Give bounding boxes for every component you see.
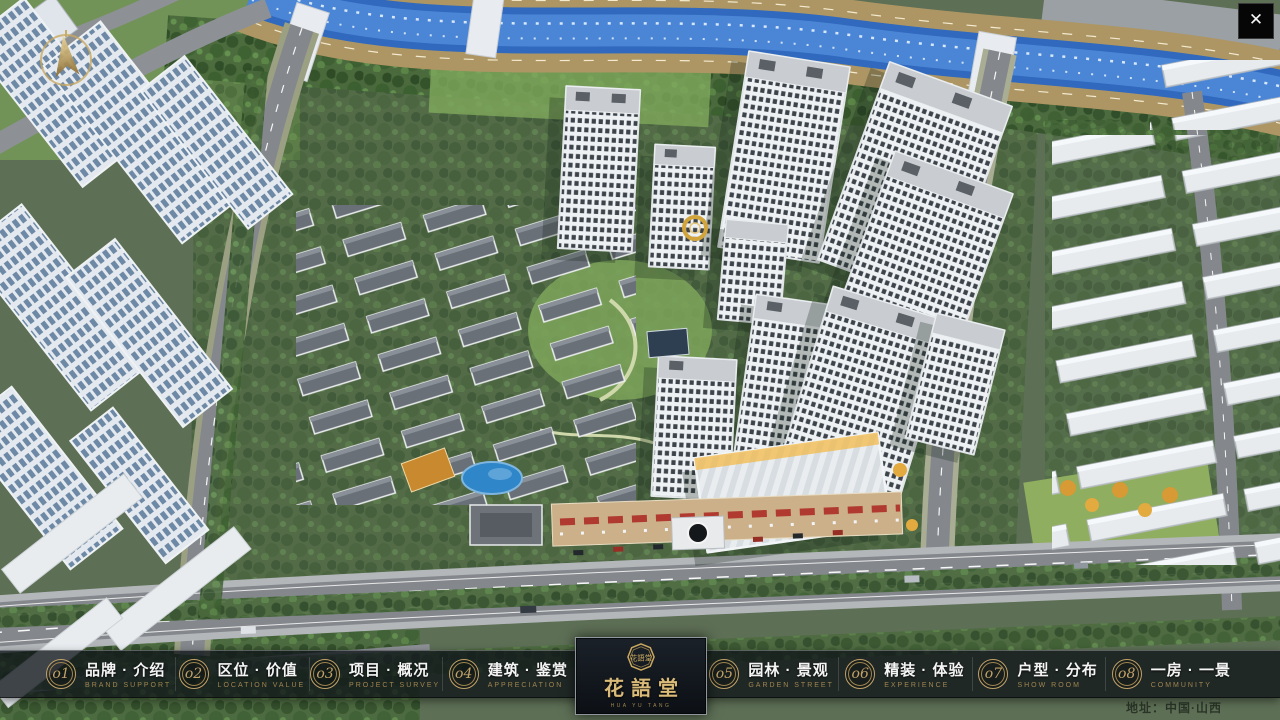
nav-item-interior[interactable]: o6 精装 · 体验EXPERIENCE [838,651,971,697]
nav-item-location[interactable]: o2 区位 · 价值LOCATION VALUE [175,651,308,697]
nav-item-project[interactable]: o3 项目 · 概况PROJECT SURVEY [309,651,442,697]
nav-item-garden[interactable]: o5 园林 · 景观GARDEN STREET [705,651,838,697]
svg-text:花語堂: 花語堂 [630,652,652,662]
brand-seal-icon: 花語堂 [627,643,655,671]
entrance-gate [671,516,724,550]
nav-item-brand[interactable]: o1 品牌 · 介绍BRAND SUPPORT [42,651,175,697]
nav-item-number-badge: o1 [46,659,76,689]
nav-item-label-en: LOCATION VALUE [218,682,306,689]
nav-item-number-badge: o2 [179,659,209,689]
nav-item-label-cn: 建筑 · 鉴赏 [488,659,568,680]
nav-item-label-en: COMMUNITY [1151,682,1212,689]
nav-item-label-en: SHOW ROOM [1017,682,1081,689]
nav-item-number-badge: o5 [709,659,739,689]
nav-item-number-badge: o6 [845,659,875,689]
project-address: 地址：中国·山西 [1126,699,1222,716]
nav-item-label-cn: 项目 · 概况 [349,659,429,680]
nav-item-number-badge: o3 [310,659,340,689]
brand-name: 花語堂 [597,672,685,701]
presentation-stage: ✕ o1 品牌 · 介绍BRAND SUPPORT o2 区位 · 价值LOCA… [0,0,1280,720]
nav-item-label-en: PROJECT SURVEY [349,682,440,689]
pond [462,462,522,494]
nav-item-label-en: GARDEN STREET [748,682,834,689]
nav-item-label-en: EXPERIENCE [884,682,949,689]
nav-item-floorplan[interactable]: o7 户型 · 分布SHOW ROOM [972,651,1105,697]
nav-item-label-cn: 户型 · 分布 [1017,659,1097,680]
nav-item-label-cn: 精装 · 体验 [884,659,964,680]
nav-item-number-badge: o7 [978,659,1008,689]
nav-item-community[interactable]: o8 一房 · 一景COMMUNITY [1105,651,1238,697]
masterplan-render [0,0,1280,720]
close-icon[interactable]: ✕ [1238,3,1274,39]
nav-item-number-badge: o8 [1112,659,1142,689]
nav-item-number-badge: o4 [449,659,479,689]
nav-item-label-cn: 园林 · 景观 [748,659,828,680]
nav-item-label-cn: 区位 · 价值 [218,659,298,680]
nav-item-architecture[interactable]: o4 建筑 · 鉴赏APPRECIATION [442,651,575,697]
brand-name-en: HUA YU TANG [611,703,672,709]
compass-icon [34,28,98,92]
nav-group-right: o5 园林 · 景观GARDEN STREET o6 精装 · 体验EXPERI… [705,651,1280,697]
nav-item-label-en: BRAND SUPPORT [85,682,171,689]
nav-item-label-cn: 一房 · 一景 [1151,659,1231,680]
nav-item-label-en: APPRECIATION [488,682,564,689]
nav-item-label-cn: 品牌 · 介绍 [85,659,165,680]
brand-logo-panel[interactable]: 花語堂 花語堂 HUA YU TANG [575,637,707,715]
nav-group-left: o1 品牌 · 介绍BRAND SUPPORT o2 区位 · 价值LOCATI… [0,651,575,697]
